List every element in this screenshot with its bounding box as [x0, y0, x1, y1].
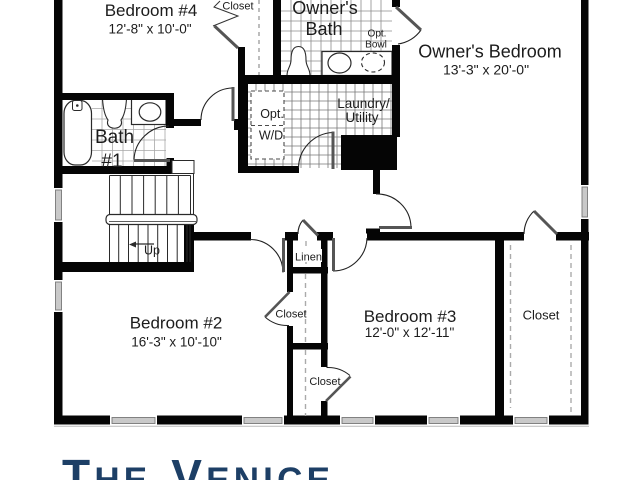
svg-text:Up: Up [144, 244, 160, 258]
svg-text:#1: #1 [101, 151, 122, 172]
svg-text:Bath: Bath [305, 19, 342, 39]
svg-text:Bowl: Bowl [365, 40, 387, 51]
svg-text:Opt.: Opt. [260, 107, 284, 121]
svg-text:12'-8" x 10'-0": 12'-8" x 10'-0" [108, 22, 191, 37]
svg-text:Closet: Closet [309, 376, 340, 388]
svg-text:Closet: Closet [523, 308, 560, 323]
svg-text:Owner's Bedroom: Owner's Bedroom [418, 42, 562, 62]
svg-text:Closet: Closet [275, 309, 306, 321]
svg-text:Bedroom #3: Bedroom #3 [364, 307, 457, 326]
svg-text:Bath: Bath [95, 127, 134, 148]
svg-text:Closet: Closet [222, 1, 253, 13]
svg-text:Laundry/: Laundry/ [337, 96, 390, 111]
svg-text:Utility: Utility [346, 110, 379, 125]
svg-text:16'-3" x 10'-10": 16'-3" x 10'-10" [131, 335, 222, 350]
svg-text:13'-3" x 20'-0": 13'-3" x 20'-0" [443, 62, 529, 78]
svg-text:Linen: Linen [295, 252, 322, 264]
svg-text:Bedroom #2: Bedroom #2 [130, 314, 223, 333]
svg-text:Opt.: Opt. [368, 29, 387, 40]
svg-text:12'-0" x 12'-11": 12'-0" x 12'-11" [365, 325, 455, 340]
svg-text:Owner's: Owner's [292, 0, 357, 18]
svg-text:Bedroom #4: Bedroom #4 [105, 1, 198, 20]
svg-text:W/D: W/D [259, 129, 283, 143]
